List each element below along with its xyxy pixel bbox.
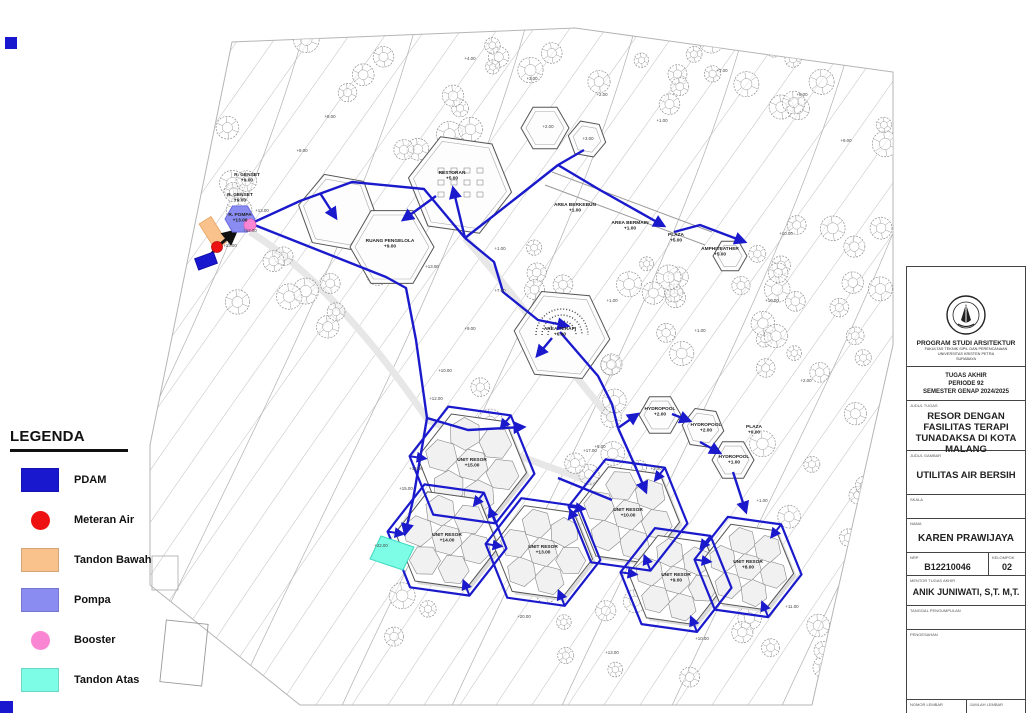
judul-tugas-label: JUDUL TUGAS [910, 403, 1022, 408]
judul-tugas-section: JUDUL TUGAS RESOR DENGAN FASILITAS TERAP… [907, 401, 1025, 451]
skala-label: SKALA [910, 497, 1022, 502]
period-line2: PERIODE 92 [910, 380, 1022, 388]
elevation-label: +11.00 [785, 604, 799, 609]
legend-rule [10, 449, 128, 452]
legend-label: Pompa [74, 594, 111, 606]
legend-item-meteran-air: Meteran Air [10, 508, 160, 532]
legend-item-booster: Booster [10, 628, 160, 652]
elevation-label: +12.00 [243, 228, 257, 233]
legend-label: Booster [74, 634, 116, 646]
title-block: PROGRAM STUDI ARSITEKTUR FAKULTAS TEKNIK… [906, 266, 1026, 713]
pengesahan-section: PENGESAHAN [907, 630, 1025, 700]
period-section: TUGAS AKHIR PERIODE 92 SEMESTER GENAP 20… [907, 367, 1025, 401]
elevation-label: +20.00 [517, 614, 531, 619]
judul-gambar-section: JUDUL GAMBAR UTILITAS AIR BERSIH [907, 451, 1025, 495]
legend-item-tandon-bawah: Tandon Bawah [10, 548, 160, 572]
legend-label: Meteran Air [74, 514, 134, 526]
institution-section: PROGRAM STUDI ARSITEKTUR FAKULTAS TEKNIK… [907, 267, 1025, 367]
elevation-label: +7.00 [494, 288, 506, 293]
mentor-name: ANIK JUNIWATI, S,T. M,T. [910, 587, 1022, 597]
city-name: SURABAYA [956, 357, 976, 362]
elevation-label: +3.00 [526, 76, 538, 81]
mentor-section: MENTOR TUGAS AKHIR ANIK JUNIWATI, S,T. M… [907, 576, 1025, 606]
period-line3: SEMESTER GENAP 2024/2025 [910, 388, 1022, 396]
elevation-label: +2.00 [596, 92, 608, 97]
elevation-label: +5.00 [594, 444, 606, 449]
elevation-label: +1.00 [694, 328, 706, 333]
legend-label: Tandon Bawah [74, 554, 151, 566]
elevation-label: +3.00 [582, 136, 594, 141]
kelompok-label: KELOMPOK [992, 555, 1022, 560]
elevation-label: +8.00 [324, 114, 336, 119]
sheet-number-section: NOMOR LEMBAR JUMLAH LEMBAR [907, 700, 1025, 713]
elevation-label: +10.00 [765, 298, 779, 303]
elevation-label: +7.00 [716, 68, 728, 73]
elevation-label: +8.00 [796, 92, 808, 97]
university-logo [944, 293, 988, 337]
elevation-label: +10.00 [779, 231, 793, 236]
elevation-label: +4.00 [464, 56, 476, 61]
nomor-lembar-label: NOMOR LEMBAR [910, 702, 963, 707]
elevation-label: +9.00 [296, 148, 308, 153]
legend-swatch-circle [10, 511, 70, 530]
judul-tugas-value: RESOR DENGAN FASILITAS TERAPI TUNADAKSA … [910, 411, 1022, 455]
elevation-label: +12.00 [429, 396, 443, 401]
legend-swatch-circle [10, 631, 70, 650]
drawing-sheet: { "accent": {"pipe_blue": "#1a1acc", "pd… [0, 0, 1029, 713]
legend-item-aliran-air: Aliran Air [10, 708, 160, 713]
elevation-label: +22.00 [374, 543, 388, 548]
elevation-label: +13.00 [255, 208, 269, 213]
legend-swatch-rect [10, 668, 70, 692]
building-label: PLAZA+0.00 [746, 424, 763, 435]
elevation-label: +9.00 [840, 138, 852, 143]
program-name: PROGRAM STUDI ARSITEKTUR [917, 340, 1016, 347]
legend-item-pdam: PDAM [10, 468, 160, 492]
legend-swatch-rect [10, 588, 70, 612]
legend-label: Tandon Atas [74, 674, 139, 686]
nrp-section: NRP B12210046 KELOMPOK 02 [907, 553, 1025, 576]
judul-gambar-label: JUDUL GAMBAR [910, 453, 1022, 458]
elevation-label: +1.00 [656, 118, 668, 123]
page-marker-top-left [5, 37, 17, 49]
elevation-label: +10.00 [695, 636, 709, 641]
tanggal-section: TANGGAL PENGUMPULAN [907, 606, 1025, 630]
legend-title: LEGENDA [10, 428, 160, 445]
elevation-label: +13.00 [223, 243, 237, 248]
jumlah-lembar-label: JUMLAH LEMBAR [970, 702, 1023, 707]
legend-item-tandon-atas: Tandon Atas [10, 668, 160, 692]
kelompok-value: 02 [992, 562, 1022, 572]
period-line1: TUGAS AKHIR [910, 372, 1022, 380]
nama-label: NAMA [910, 521, 1022, 526]
legend-swatch-rect [10, 548, 70, 572]
judul-gambar-value: UTILITAS AIR BERSIH [910, 470, 1022, 481]
elevation-label: +3.00 [650, 466, 662, 471]
elevation-label: +2.00 [542, 124, 554, 129]
elevation-label: +9.00 [464, 326, 476, 331]
elevation-label: +15.00 [399, 486, 413, 491]
legend: LEGENDA PDAMMeteran AirTandon BawahPompa… [10, 428, 160, 713]
building-label: PLAZA+5.00 [668, 232, 685, 243]
student-name: KAREN PRAWIJAYA [910, 533, 1022, 544]
mentor-label: MENTOR TUGAS AKHIR [910, 578, 1022, 583]
pengesahan-label: PENGESAHAN [910, 632, 1022, 637]
elevation-label: +2.00 [800, 378, 812, 383]
tanggal-label: TANGGAL PENGUMPULAN [910, 608, 1022, 613]
nrp-label: NRP [910, 555, 985, 560]
legend-swatch-rect [10, 468, 70, 492]
elevation-label: +1.00 [494, 246, 506, 251]
nrp-value: B12210046 [910, 562, 985, 572]
elevation-label: +16.00 [409, 466, 423, 471]
elevation-label: +1.00 [756, 498, 768, 503]
legend-item-pompa: Pompa [10, 588, 160, 612]
elevation-label: +1.00 [606, 298, 618, 303]
skala-section: SKALA [907, 495, 1025, 519]
legend-label: PDAM [74, 474, 106, 486]
elevation-label: +13.00 [425, 264, 439, 269]
elevation-label: +10.00 [438, 368, 452, 373]
building-label: AREA BERKEBUN+1.00 [554, 202, 596, 213]
nama-section: NAMA KAREN PRAWIJAYA [907, 519, 1025, 553]
elevation-label: +13.00 [605, 650, 619, 655]
